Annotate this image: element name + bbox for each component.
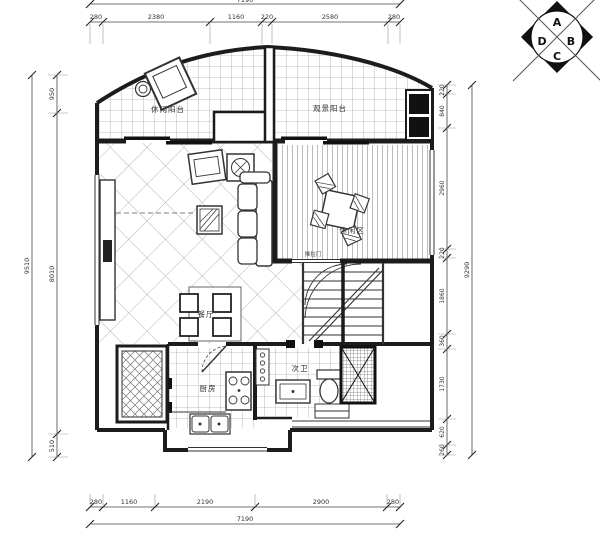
- dim-label: 280: [387, 498, 399, 506]
- coffee-table: [197, 206, 222, 234]
- storage-room: [117, 346, 167, 422]
- floor-plan-drawing: 推拉门: [0, 0, 600, 541]
- room-label-kitchen: 厨房: [200, 383, 217, 393]
- sliding-door-leaf: [323, 141, 369, 145]
- armchair: [188, 150, 226, 184]
- dim-label: 2380: [148, 13, 165, 21]
- landing-steps: [315, 404, 349, 418]
- compass-letter-c: C: [553, 50, 561, 63]
- dim-bottom: 280 1160 2190 2900 280 7190: [86, 494, 404, 528]
- dim-label: 1160: [121, 498, 138, 506]
- leisure-chair: [310, 210, 328, 228]
- shower-tray: [276, 380, 310, 403]
- compass-letter-b: B: [567, 35, 575, 48]
- dim-label: 280: [388, 13, 400, 21]
- dim-label: 8010: [48, 266, 56, 283]
- floor-drain-box: [341, 347, 375, 403]
- dim-label: 840: [439, 105, 446, 117]
- washbasin: [256, 349, 269, 385]
- dim-label: 220: [261, 13, 273, 21]
- dim-left: 9510 950 8010 510: [23, 71, 68, 461]
- dim-label: 510: [48, 440, 56, 452]
- left-wall-window: [94, 175, 100, 325]
- room-label-left-balcony: 休闲阳台: [151, 104, 185, 114]
- staircase: [303, 263, 383, 344]
- dim-left-total: 9510: [23, 258, 31, 275]
- dim-label: 260: [439, 444, 446, 456]
- room-label-leisure-area: 休闲区: [339, 225, 365, 235]
- room-label-right-balcony: 观景阳台: [313, 103, 347, 113]
- room-label-dining: 餐厅: [198, 310, 215, 319]
- dim-label: 1860: [439, 288, 446, 303]
- dim-top: 7190 280 2380 1160 220 2580 280: [86, 0, 404, 44]
- dining-chair: [180, 294, 198, 312]
- dining-chair: [180, 318, 198, 336]
- dim-right-total: 9290: [463, 262, 471, 279]
- dim-right: 220 840 2960 220 1860 360 1730 620 260 9…: [438, 81, 476, 459]
- leisure-bottom-wall: [272, 260, 432, 263]
- floor-plan-page: 推拉门: [0, 0, 600, 541]
- dim-label: 2960: [439, 180, 446, 195]
- dim-label: 2190: [197, 498, 214, 506]
- kitchen-window: [188, 446, 267, 454]
- dim-bottom-total: 7190: [237, 515, 254, 523]
- tv-cabinet: [100, 180, 115, 320]
- dim-label: 2900: [313, 498, 330, 506]
- compass-letter-a: A: [553, 16, 562, 29]
- balcony-cabinet: [214, 112, 267, 142]
- sliding-door-leaf: [166, 141, 212, 145]
- room-label-bathroom: 次卫: [292, 363, 309, 373]
- balcony-dark-closet: [406, 90, 432, 140]
- compass: A B C D: [513, 0, 600, 81]
- dim-top-total: 7190: [237, 0, 254, 4]
- dim-label: 620: [439, 426, 446, 438]
- compass-letter-d: D: [537, 35, 546, 48]
- dim-label: 220: [439, 247, 446, 259]
- balcony-divider-wall: [265, 47, 274, 142]
- stove: [226, 372, 251, 410]
- room-label-sliding-door: 推拉门: [305, 250, 322, 258]
- dining-chair: [213, 294, 231, 312]
- dim-label: 1160: [228, 13, 245, 21]
- dim-label: 950: [48, 88, 56, 100]
- dim-label: 360: [439, 335, 446, 347]
- bath-bottom-wall: [255, 418, 430, 427]
- sofa: [238, 172, 272, 266]
- round-fixture-icon: [136, 82, 151, 97]
- dim-label: 1730: [439, 376, 446, 391]
- dim-label: 2580: [322, 13, 339, 21]
- dim-label: 220: [439, 84, 446, 96]
- dining-chair: [213, 318, 231, 336]
- right-wall-window: [429, 150, 435, 255]
- dim-label: 280: [90, 498, 102, 506]
- sliding-door-leaf: [124, 137, 170, 141]
- dim-label: 280: [90, 13, 102, 21]
- sliding-door-leaf: [281, 137, 327, 141]
